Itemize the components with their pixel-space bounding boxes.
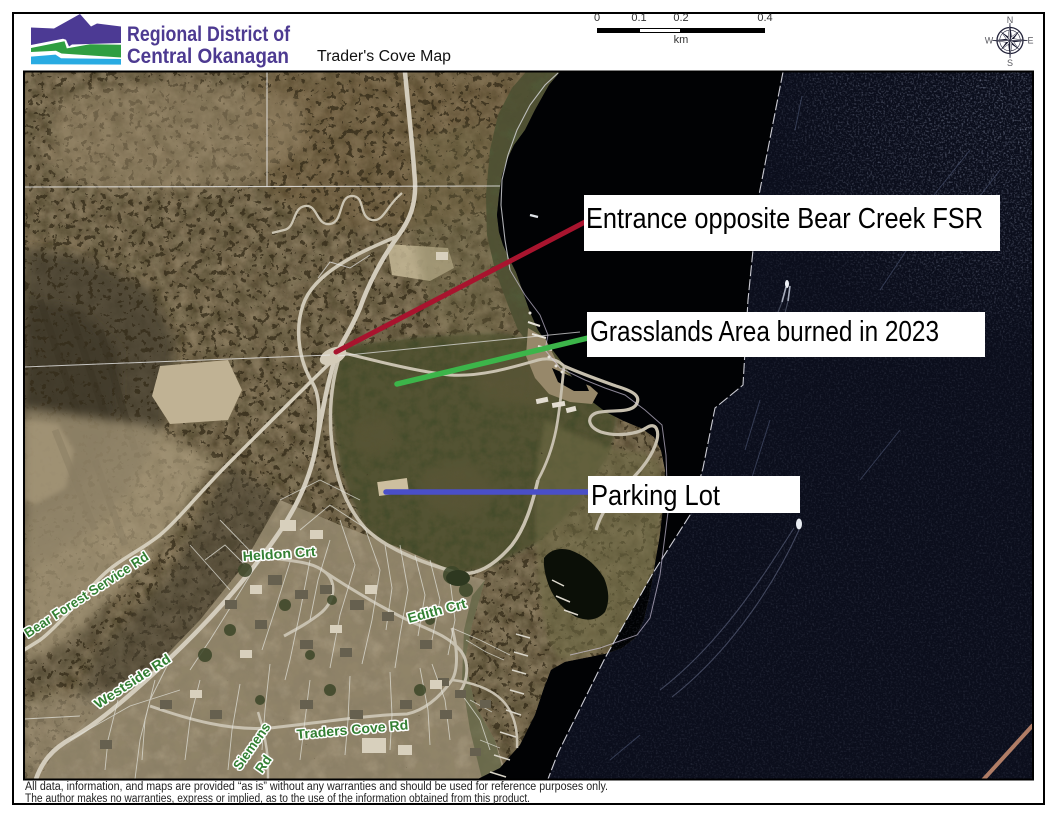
svg-text:Parking Lot: Parking Lot — [591, 480, 720, 512]
svg-text:All data, information, and map: All data, information, and maps are prov… — [25, 781, 608, 793]
svg-text:Entrance opposite Bear Creek F: Entrance opposite Bear Creek FSR — [586, 203, 983, 235]
svg-text:Grasslands Area burned in 2023: Grasslands Area burned in 2023 — [590, 316, 939, 348]
svg-text:N: N — [1007, 15, 1014, 25]
svg-text:E: E — [1027, 36, 1033, 46]
svg-text:km: km — [674, 34, 689, 46]
svg-text:Regional District of: Regional District of — [127, 23, 291, 46]
svg-text:S: S — [1007, 58, 1013, 68]
svg-text:0: 0 — [594, 12, 600, 24]
svg-text:The author makes no warranties: The author makes no warranties, express … — [25, 793, 530, 805]
svg-text:0.4: 0.4 — [757, 12, 772, 24]
svg-text:Central Okanagan: Central Okanagan — [127, 45, 289, 68]
svg-text:Trader's Cove Map: Trader's Cove Map — [317, 48, 451, 65]
svg-text:0.1: 0.1 — [631, 12, 646, 24]
svg-text:0.2: 0.2 — [673, 12, 688, 24]
svg-text:W: W — [985, 36, 994, 46]
